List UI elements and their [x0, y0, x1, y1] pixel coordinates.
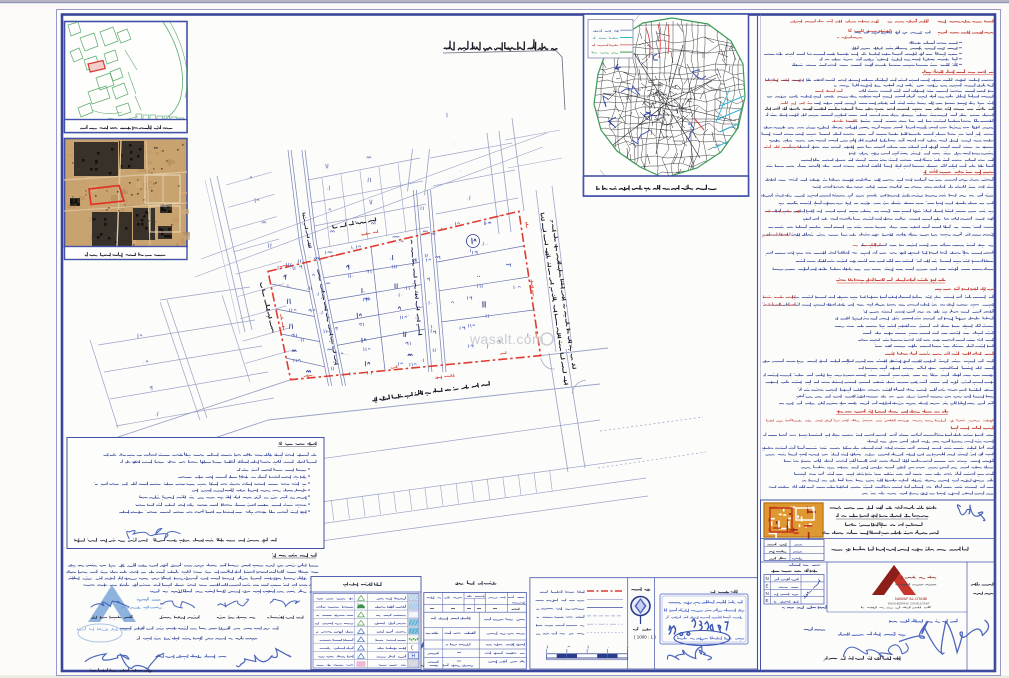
- svg-text:( 1000 : 1 ): ( 1000 : 1 ): [634, 635, 656, 640]
- svg-text:NAWAF AL-OTAIBI: NAWAF AL-OTAIBI: [895, 597, 927, 601]
- svg-text:N: N: [766, 576, 769, 581]
- svg-text:E: E: [766, 598, 769, 603]
- svg-text:N: N: [766, 591, 769, 596]
- svg-text:E: E: [766, 583, 769, 588]
- svg-text:H: H: [412, 654, 416, 660]
- svg-text:ENGINEERING CONSULTANT: ENGINEERING CONSULTANT: [888, 602, 930, 606]
- svg-text:wasalt.com: wasalt.com: [469, 331, 544, 347]
